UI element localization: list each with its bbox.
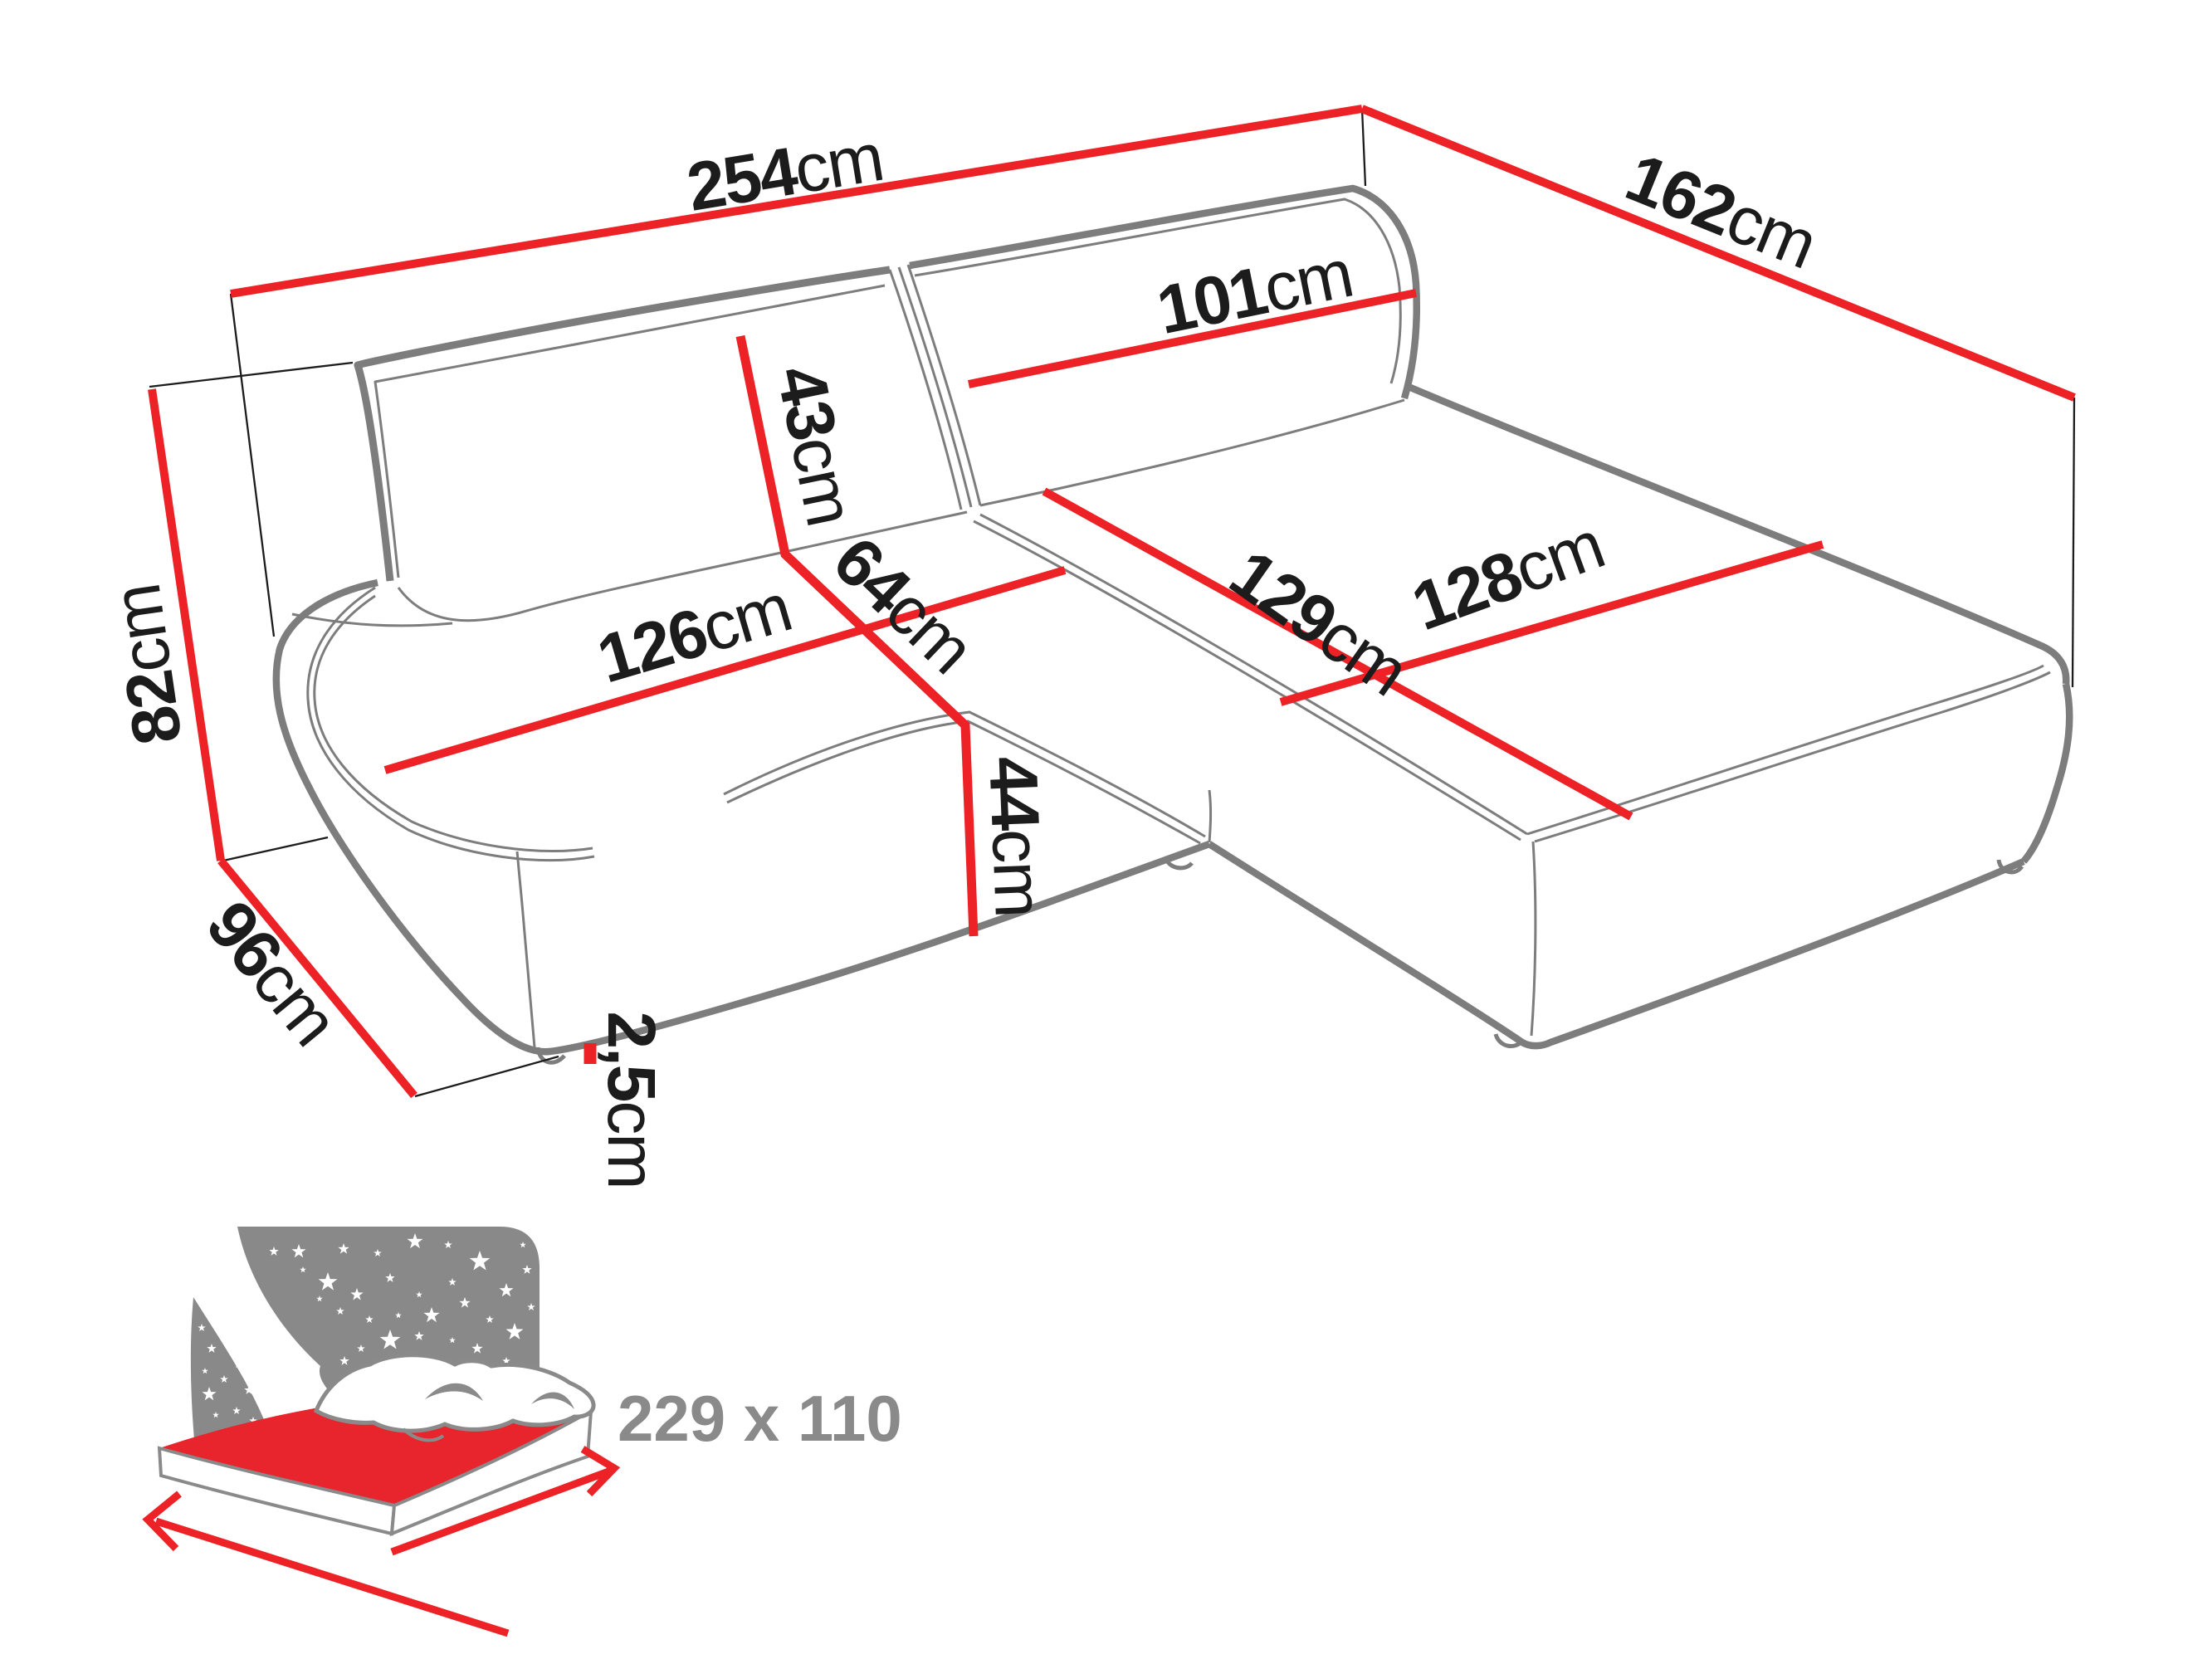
svg-text:229 x 110: 229 x 110 — [618, 1382, 902, 1455]
svg-text:2,5cm: 2,5cm — [593, 1011, 669, 1188]
svg-text:44cm: 44cm — [974, 755, 1057, 918]
